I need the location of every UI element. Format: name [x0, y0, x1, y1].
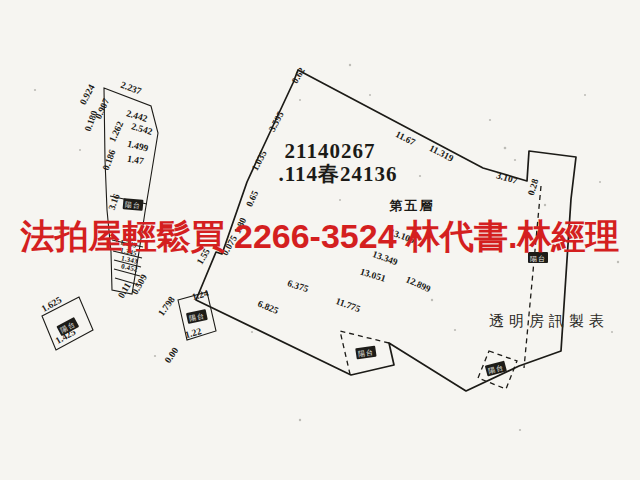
svg-text:2.237: 2.237	[119, 80, 143, 97]
dim-1-47: 1.47	[126, 154, 144, 167]
scanned-floor-plan-page: 21140267.114春24136第五層透明房訊製表0.623.5951.03…	[0, 0, 640, 480]
dim-3-595: 3.595	[267, 110, 286, 134]
dim-0-180: 0.180	[83, 109, 100, 133]
svg-text:0.180: 0.180	[83, 109, 100, 133]
svg-text:透明房訊製表: 透明房訊製表	[489, 313, 609, 329]
dim-1-425: 1.425	[54, 327, 78, 346]
balcony-strip: 陽台	[123, 198, 144, 211]
svg-text:0.186: 0.186	[101, 148, 118, 172]
svg-text:.114春24136: .114春24136	[278, 162, 397, 186]
svg-text:3.16: 3.16	[107, 192, 122, 211]
balcony-strip-dashed-line	[524, 186, 541, 368]
svg-text:1.425: 1.425	[54, 327, 78, 346]
dim-0-509: 0.509	[130, 273, 149, 297]
dim-1-262: 1.262	[107, 120, 125, 144]
dim-6-825: 6.825	[256, 299, 280, 316]
svg-text:6.375: 6.375	[286, 278, 310, 294]
svg-text:1.22: 1.22	[184, 326, 203, 340]
dim-0-62: 0.62	[290, 66, 307, 86]
svg-text:0.62: 0.62	[290, 66, 307, 86]
dim-3-16: 3.16	[107, 192, 122, 211]
dim-11-775: 11.775	[334, 296, 362, 314]
dim-2-542: 2.542	[130, 121, 154, 137]
publisher-watermark: 透明房訊製表	[489, 313, 609, 329]
dim-0-65: 0.65	[244, 189, 260, 209]
svg-text:1.24: 1.24	[191, 288, 210, 302]
svg-text:0.509: 0.509	[130, 273, 149, 297]
dim-1-035: 1.035	[250, 149, 269, 173]
svg-text:0.924: 0.924	[78, 83, 97, 107]
dim-13-051: 13.051	[359, 267, 387, 284]
svg-text:陽台: 陽台	[530, 255, 546, 263]
dim-2-237: 2.237	[119, 80, 143, 97]
svg-text:陽台: 陽台	[125, 201, 142, 210]
balcony-main-bottom: 陽台	[355, 346, 376, 360]
svg-text:1.035: 1.035	[250, 149, 269, 173]
svg-text:1.499: 1.499	[126, 139, 149, 154]
dim-1-24: 1.24	[191, 288, 210, 302]
dim-1-798: 1.798	[156, 294, 177, 317]
svg-text:11.775: 11.775	[334, 296, 362, 314]
svg-text:13.051: 13.051	[359, 267, 387, 284]
svg-text:12.899: 12.899	[404, 274, 432, 294]
dim-0-924: 0.924	[78, 83, 97, 107]
floor-level-label: 第五層	[389, 198, 435, 213]
svg-text:6.825: 6.825	[256, 299, 280, 316]
svg-text:1.262: 1.262	[107, 120, 125, 144]
balcony-sq2: 陽台	[186, 309, 208, 324]
dim-0-186: 0.186	[101, 148, 118, 172]
dim-1-22: 1.22	[184, 326, 203, 340]
svg-text:3.107: 3.107	[495, 170, 519, 186]
svg-text:21140267: 21140267	[285, 139, 376, 163]
svg-text:第五層: 第五層	[389, 198, 435, 213]
dim-0-28: 0.28	[526, 177, 541, 196]
svg-text:1.47: 1.47	[126, 154, 144, 167]
svg-text:0.00: 0.00	[163, 345, 181, 365]
ad-overlay-text: 法拍屋輕鬆買 2266-3524 林代書.林經理	[21, 218, 620, 254]
svg-text:2.542: 2.542	[130, 121, 154, 137]
svg-text:0.65: 0.65	[244, 189, 260, 209]
svg-text:0.28: 0.28	[526, 177, 541, 196]
dim-6-375: 6.375	[286, 278, 310, 294]
dim-3-107: 3.107	[495, 170, 519, 186]
dim-1-499: 1.499	[126, 139, 149, 154]
case-number: .114春24136	[278, 162, 397, 186]
svg-text:3.595: 3.595	[267, 110, 286, 134]
dim-0-00: 0.00	[163, 345, 181, 365]
dim-12-899: 12.899	[404, 274, 432, 294]
registration-number: 21140267	[285, 139, 376, 163]
svg-text:1.798: 1.798	[156, 294, 177, 317]
